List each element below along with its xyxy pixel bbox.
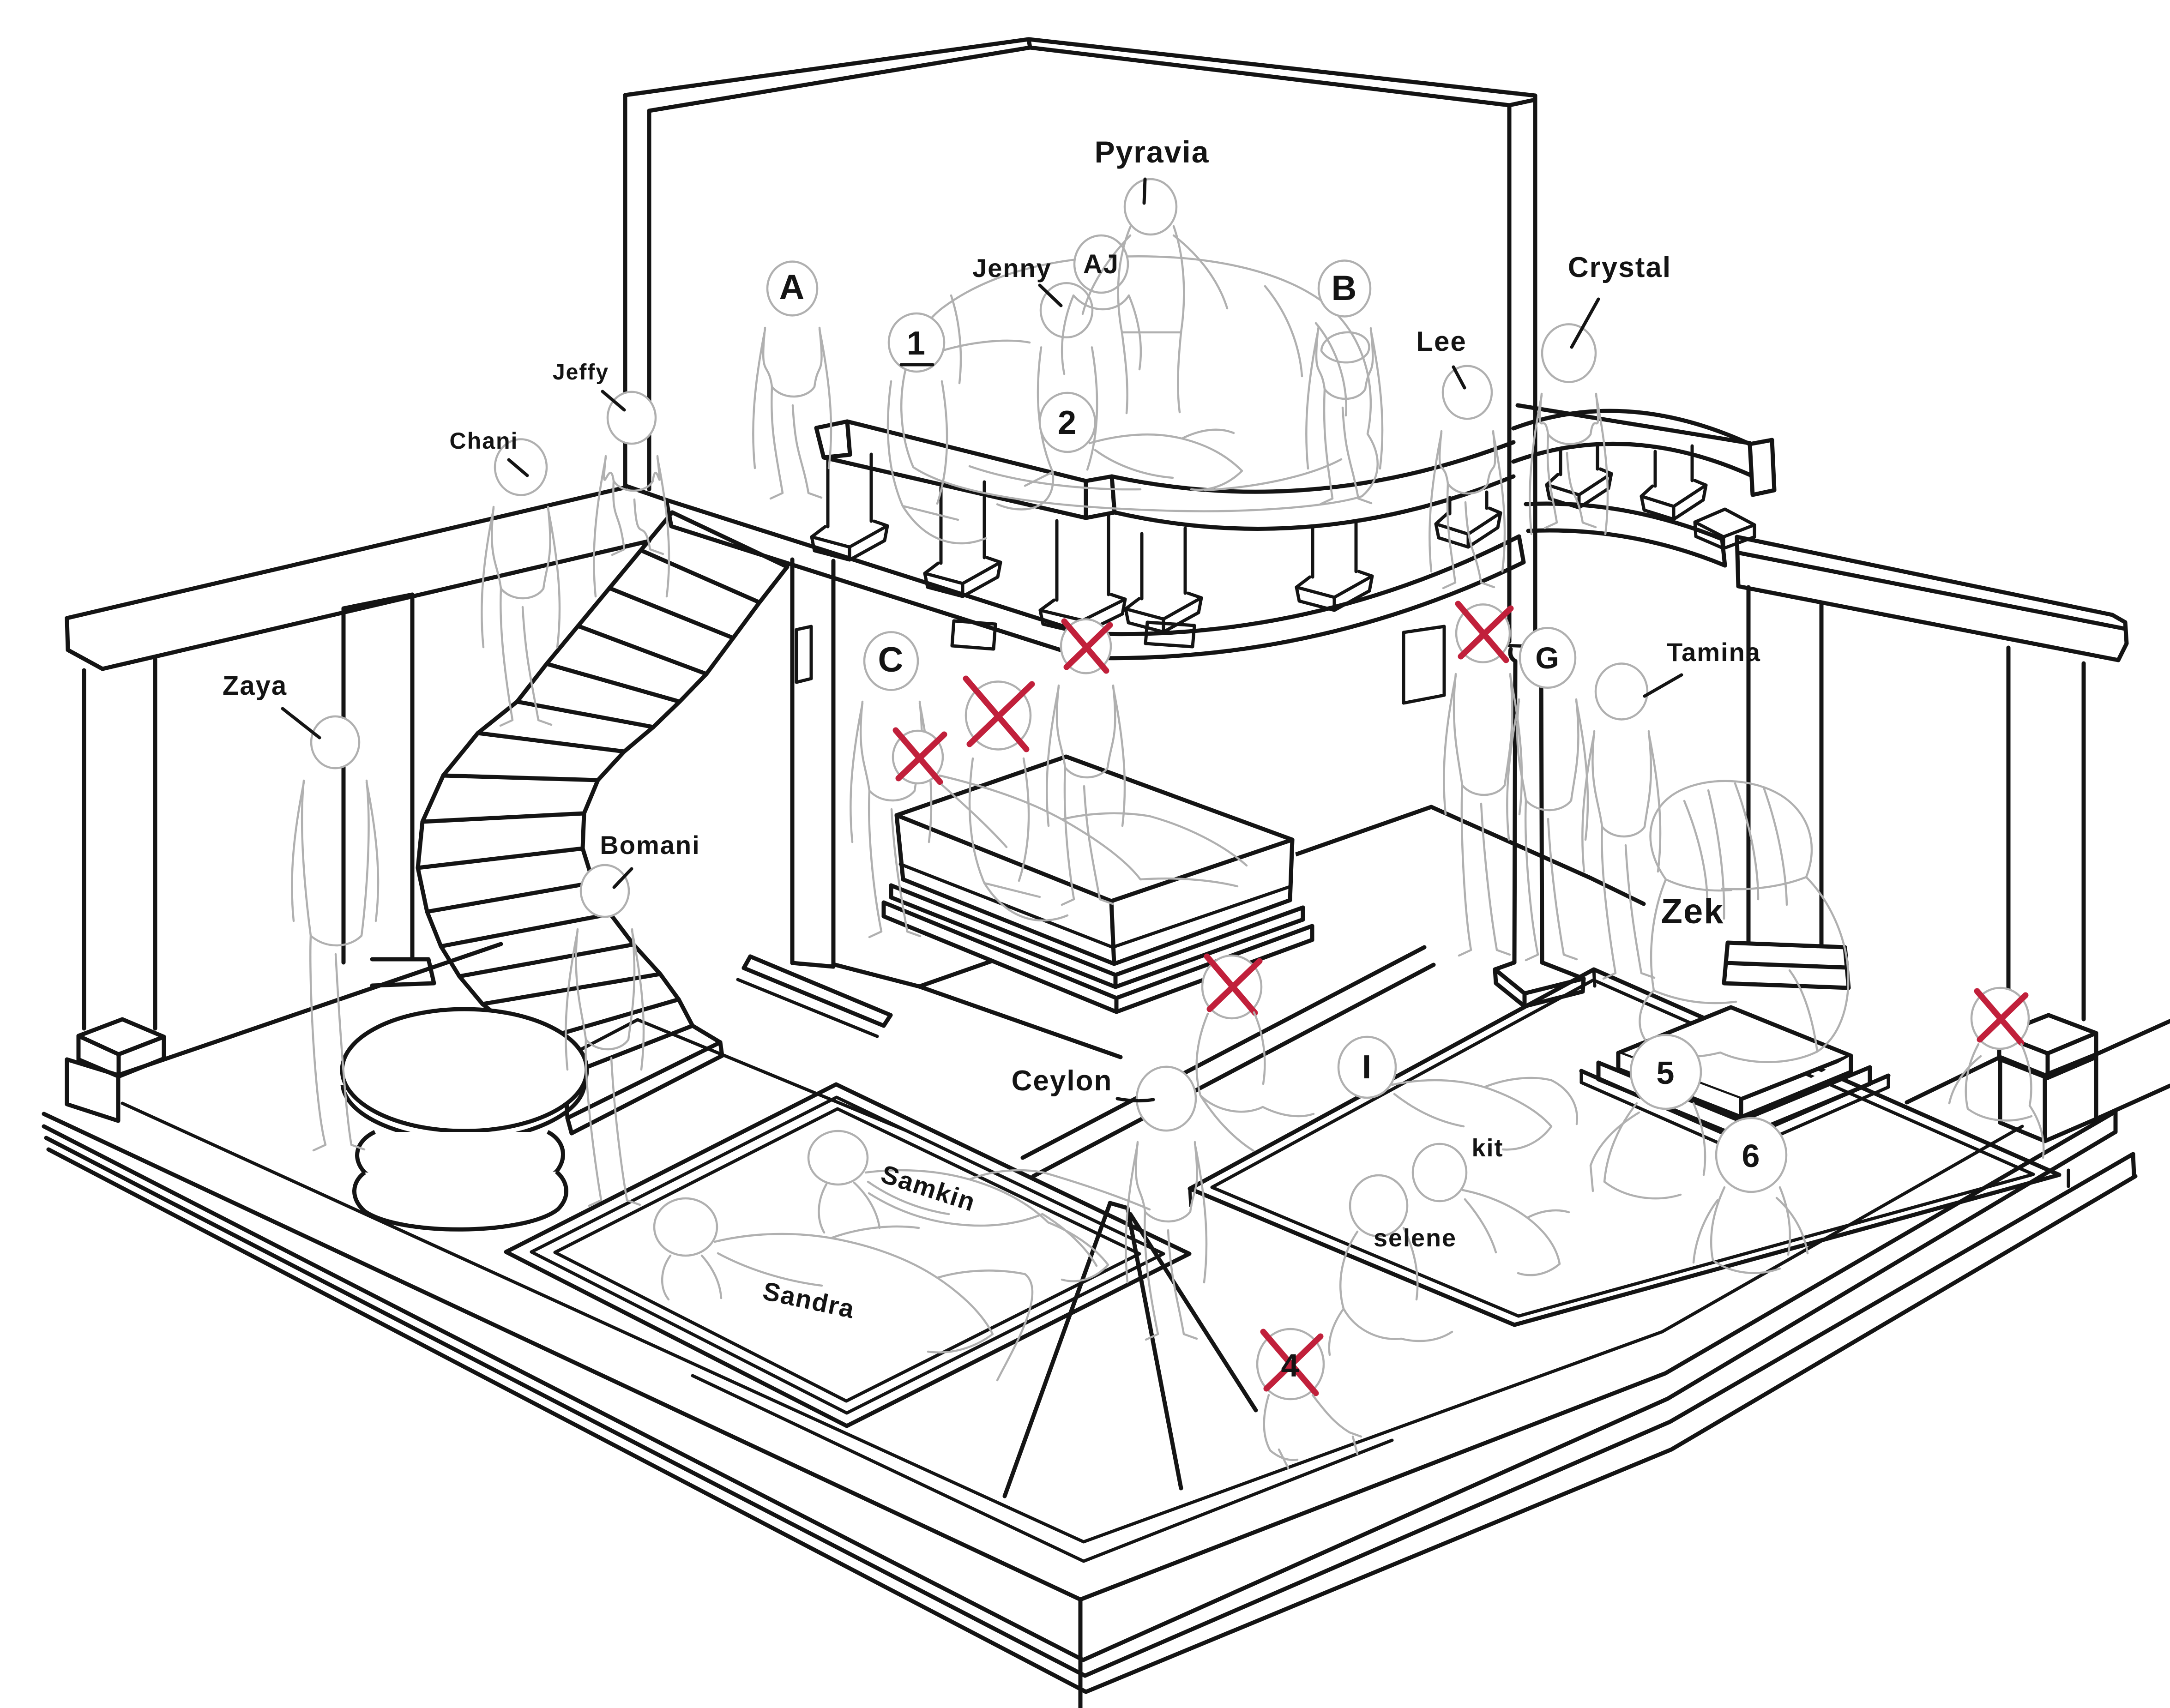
svg-text:Bomani: Bomani xyxy=(600,830,700,860)
svg-text:C: C xyxy=(878,640,904,680)
svg-text:Crystal: Crystal xyxy=(1568,252,1671,283)
svg-text:Lee: Lee xyxy=(1416,326,1466,357)
svg-text:Zaya: Zaya xyxy=(223,671,287,701)
svg-text:I: I xyxy=(1362,1049,1372,1086)
svg-text:5: 5 xyxy=(1657,1055,1676,1091)
svg-text:2: 2 xyxy=(1058,404,1077,441)
svg-text:Pyravia: Pyravia xyxy=(1095,135,1210,169)
svg-text:B: B xyxy=(1332,269,1358,308)
svg-text:Tamina: Tamina xyxy=(1667,637,1761,667)
svg-text:4: 4 xyxy=(1281,1347,1300,1383)
svg-text:selene: selene xyxy=(1374,1224,1457,1252)
svg-text:Jenny: Jenny xyxy=(972,253,1052,283)
svg-text:kit: kit xyxy=(1471,1134,1503,1162)
svg-text:AJ: AJ xyxy=(1083,249,1119,279)
svg-text:A: A xyxy=(779,268,806,307)
svg-text:Zek: Zek xyxy=(1661,892,1724,931)
svg-text:G: G xyxy=(1535,641,1560,675)
svg-text:6: 6 xyxy=(1742,1138,1761,1174)
svg-text:Chani: Chani xyxy=(450,428,518,454)
svg-text:1: 1 xyxy=(907,325,926,362)
svg-text:Jeffy: Jeffy xyxy=(553,360,609,385)
svg-text:Ceylon: Ceylon xyxy=(1012,1065,1113,1097)
